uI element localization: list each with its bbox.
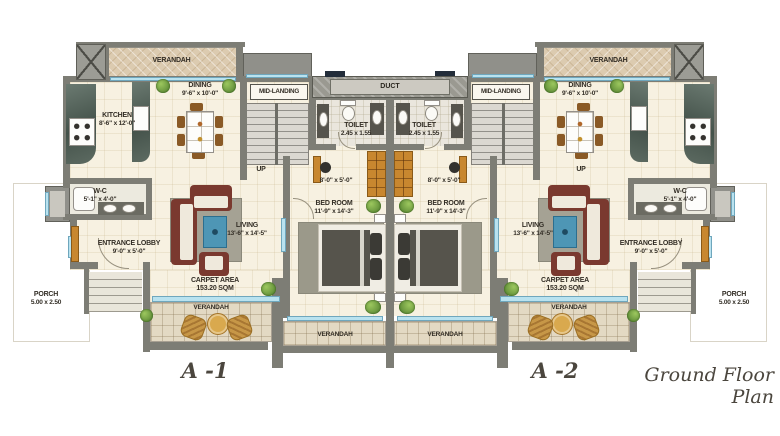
passage-dims-label: 8'-0" x 5'-0" [308,177,364,184]
center-wall [386,98,394,368]
room-dims: 5'-1" x 4'-0" [75,196,125,203]
window-sill [287,316,383,321]
sofa-cushions [194,196,228,208]
sofa-cushions [180,204,193,260]
kitchen-label: KITCHEN 8'-6" x 12'-0" [86,112,148,128]
plant [627,309,640,322]
verandah-rail [392,346,497,353]
desk-chair [320,162,331,173]
room-name: PORCH [15,291,77,299]
duct-label: DUCT [330,79,450,95]
unit-label: A -1 [163,358,247,383]
toilet-label: TOILET 2.45 x 1.55 [396,122,452,138]
living-label: LIVING 13'-6" x 14'-5" [212,222,282,238]
plant [261,282,276,296]
porch-label: PORCH 5.00 x 2.50 [703,291,765,307]
room-name: LIVING [498,222,568,230]
stove [685,118,711,146]
mid-landing-label: MID-LANDING [250,84,308,100]
room-dims: 9'-6" x 10'-0" [542,90,618,97]
carpet-line2: 153.20 SQM [182,285,248,293]
dining-table [566,111,594,153]
dining-chair [215,116,223,128]
wall [628,178,717,184]
dining-chair [557,134,565,146]
dining-chair [595,116,603,128]
verandah-label: VERANDAH [308,331,362,338]
armchair-cushion [557,256,575,270]
verandah-table [551,313,573,335]
plant [399,300,415,314]
window-sill [45,192,49,216]
window-sill [731,192,735,216]
entrance-door [71,226,79,262]
living-label: LIVING 13'-6" x 14'-5" [498,222,568,238]
wall [533,76,540,180]
carpet-line2: 153.20 SQM [532,285,598,293]
room-dims: 11'-9" x 14'-3" [300,208,368,215]
toilet-wc [425,106,438,121]
room-name: ENTRANCE LOBBY [95,240,163,248]
toilet-wc [644,204,658,213]
room-dims: 5.00 x 2.50 [703,299,765,306]
carpet-area-label: CARPET AREA 153.20 SQM [532,277,598,293]
window-sill [472,74,534,78]
wardrobe [367,151,386,197]
verandah-rail [148,342,268,350]
wall [444,144,471,150]
room-name: TOILET [328,122,384,130]
room-name: KITCHEN [86,112,148,120]
room-dims: 11'-9" x 14'-3" [412,208,480,215]
room-name: DINING [542,82,618,90]
room-dims: 2.45 x 1.55 [328,130,384,137]
wall [236,44,243,80]
dining-chair [177,134,185,146]
verandah-label: VERANDAH [106,57,237,65]
room-name: BED ROOM [300,200,368,208]
dining-chair [577,103,590,111]
sofa-cushions [552,196,586,208]
nightstand [394,214,406,223]
dining-label: DINING 9'-6" x 10'-0" [162,82,238,98]
armchair-cushion [205,256,223,270]
dining-table [186,111,214,153]
stair-divider [275,103,278,165]
sofa-cushions [587,204,600,260]
room-dims: 9'-0" x 5'-0" [617,248,685,255]
wall [309,144,336,150]
nightstand [374,214,386,223]
wardrobe [394,151,413,197]
verandah-label: VERANDAH [418,331,472,338]
wall [356,144,386,150]
stair-divider [502,103,505,165]
dining-chair [177,116,185,128]
passage-dims-label: 8'-0" x 5'-0" [416,177,472,184]
room-dims: 5'-1" x 4'-0" [655,196,705,203]
wc-label: W-C 5'-1" x 4'-0" [655,188,705,204]
room-name: DINING [162,82,238,90]
wall [84,268,89,314]
shaft [674,44,704,80]
bed-fold [416,230,420,286]
room-dims: 13'-6" x 14'-5" [212,230,282,237]
up-label: UP [247,166,275,174]
wash-basin [452,112,461,127]
bath-shaft-inner [50,191,65,217]
verandah-label: VERANDAH [543,57,674,65]
unit-label: A -2 [513,358,597,383]
plan-title: Ground Floor Plan [596,364,774,408]
porch-steps [89,272,142,312]
dining-label: DINING 9'-6" x 10'-0" [542,82,618,98]
window-sill [397,316,493,321]
window-sill [544,77,670,81]
plant [365,300,381,314]
plant [366,199,381,213]
room-name: BED ROOM [412,200,480,208]
wall [240,76,247,180]
room-name: W-C [75,188,125,196]
porch-steps [638,272,691,312]
up-label: UP [567,166,595,174]
carpet-line1: CARPET AREA [532,277,598,285]
porch-label: PORCH 5.00 x 2.50 [15,291,77,307]
window-sill [246,74,308,78]
room-dims: 2.45 x 1.55 [396,130,452,137]
window-sill [500,296,628,302]
bedroom-label: BED ROOM 11'-9" x 14'-3" [300,200,368,216]
shaft [76,44,106,80]
window-sill [110,77,236,81]
dining-chair [595,134,603,146]
lobby-label: ENTRANCE LOBBY 9'-0" x 5'-0" [95,240,163,256]
wash-basin [663,204,677,213]
toilet-label: TOILET 2.45 x 1.55 [328,122,384,138]
toilet-wc [342,106,355,121]
room-name: LIVING [212,222,282,230]
room-name: W-C [655,188,705,196]
room-name: ENTRANCE LOBBY [617,240,685,248]
lobby-label: ENTRANCE LOBBY 9'-0" x 5'-0" [617,240,685,256]
toilet-wc [122,204,136,213]
mid-landing-label: MID-LANDING [472,84,530,100]
carpet-area-label: CARPET AREA 153.20 SQM [182,277,248,293]
wall [143,262,150,352]
pillow [398,258,410,280]
dining-chair [557,116,565,128]
wash-basin [319,112,328,127]
vent-window [325,71,345,77]
room-dims: 8'-6" x 12'-0" [86,120,148,127]
room-dims: 9'-0" x 5'-0" [95,248,163,255]
verandah-label: VERANDAH [179,304,243,311]
carpet-line1: CARPET AREA [182,277,248,285]
pillow [370,233,382,255]
wall [63,178,152,184]
room-dims: 13'-6" x 14'-5" [498,230,568,237]
verandah-rail [283,346,388,353]
room-dims: 5.00 x 2.50 [15,299,77,306]
wc-label: W-C 5'-1" x 4'-0" [75,188,125,204]
fridge [631,106,647,131]
wall [394,144,424,150]
verandah-label: VERANDAH [537,304,601,311]
bath-shaft-inner [715,191,730,217]
wall [682,262,710,269]
bed-fold [360,230,364,286]
room-dims: 9'-6" x 10'-0" [162,90,238,97]
verandah-rail [512,342,632,350]
dining-chair [215,134,223,146]
floor-plan: VERANDAH KITCHEN 8'-6" x 12'-0" DINING 9… [0,0,780,436]
window-sill [152,296,280,302]
entrance-door [701,226,709,262]
room-name: TOILET [396,122,452,130]
wall [630,262,637,352]
room-name: PORCH [703,291,765,299]
dining-chair [190,103,203,111]
plant [140,309,153,322]
pillow [398,233,410,255]
desk-chair [449,162,460,173]
plant [504,282,519,296]
bedroom-label: BED ROOM 11'-9" x 14'-3" [412,200,480,216]
wash-basin [103,204,117,213]
pillow [370,258,382,280]
wall [691,268,696,314]
